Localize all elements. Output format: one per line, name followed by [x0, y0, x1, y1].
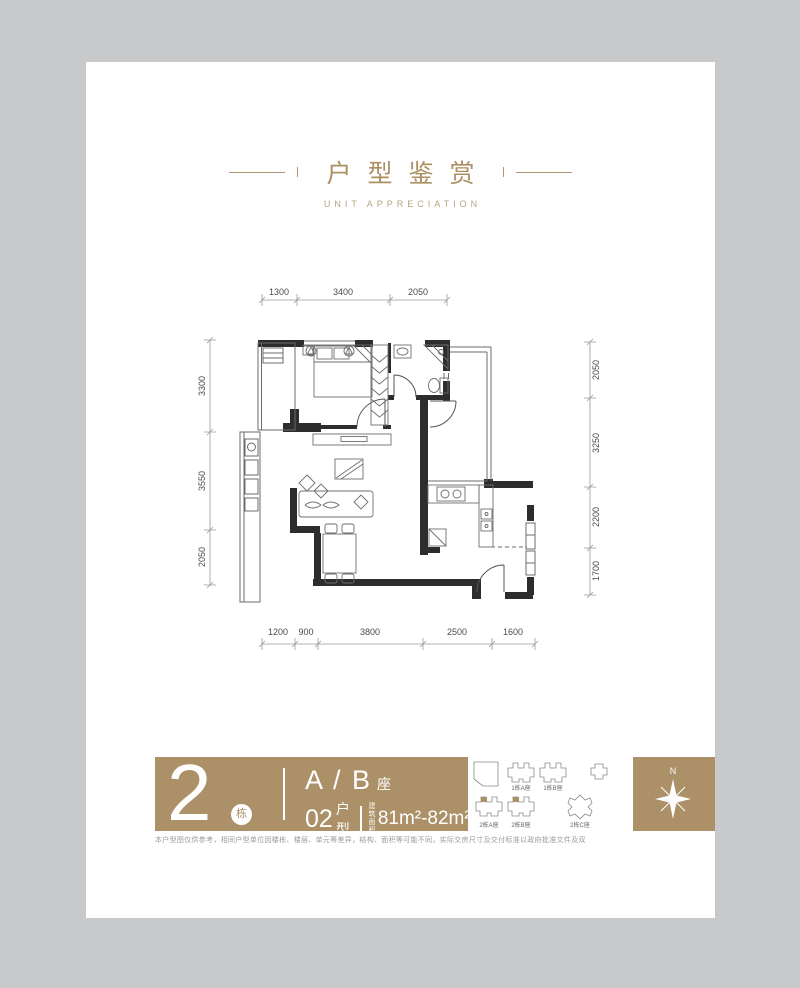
title-tick-right — [503, 167, 504, 177]
disclaimer-text: 本户型图仅供参考，相同户型单位因楼栋、楼层、单元等差异，结构、面积等可能不同，实… — [155, 835, 585, 845]
tower-small — [591, 764, 607, 779]
info-bar: 2 栋 A / B 座 02 户型 建筑 面积 81m²-8 — [155, 757, 715, 831]
building-suffix: 栋 — [236, 809, 247, 820]
dining-table — [323, 534, 356, 573]
dim-top-2: 3400 — [333, 287, 353, 297]
bed — [314, 345, 372, 397]
dim-right-3: 2200 — [591, 507, 601, 527]
dim-bottom-3: 3800 — [360, 627, 380, 637]
dimension-lines — [204, 294, 596, 650]
sofa — [299, 491, 373, 517]
dim-bottom-5: 1600 — [503, 627, 523, 637]
dim-right-1: 2050 — [591, 360, 601, 380]
label-tower-1b: 1栋B座 — [543, 784, 562, 792]
podium-outline — [474, 762, 498, 786]
block-suffix: 座 — [377, 774, 391, 794]
tv-cabinet — [313, 434, 391, 445]
dining-chair — [325, 524, 337, 533]
label-tower-2c: 2栋C座 — [570, 821, 590, 829]
compass-rose-icon — [655, 779, 691, 819]
highlighted-unit-2b — [513, 797, 519, 802]
building-suffix-badge: 栋 — [231, 804, 252, 825]
dim-right-4: 1700 — [591, 561, 601, 581]
kitchen-sink — [481, 509, 492, 519]
divider-small — [360, 806, 361, 831]
compass-block: N — [633, 757, 715, 831]
tower-2b — [508, 797, 534, 816]
page-title: 户型鉴赏 — [310, 154, 490, 190]
windows-and-thin-walls — [240, 341, 535, 602]
site-plan-panel: 1栋A座 1栋B座 2栋A座 2栋B座 2栋C座 — [468, 757, 633, 831]
floor-plan: 1300 3400 2050 3300 3550 2050 2050 3250 … — [195, 283, 605, 683]
poster-background: { "header": { "title": "户型鉴赏", "subtitle… — [0, 0, 800, 988]
site-plan-svg: 1栋A座 1栋B座 2栋A座 2栋B座 2栋C座 — [468, 757, 633, 831]
dim-left-3: 2050 — [197, 547, 207, 567]
unit-suffix: 户型 — [336, 799, 351, 831]
tower-2c — [568, 795, 592, 819]
dim-bottom-1: 1200 — [268, 627, 288, 637]
dining-chair — [342, 524, 354, 533]
page-subtitle: UNIT APPRECIATION — [86, 199, 715, 209]
label-tower-1a: 1栋A座 — [511, 784, 530, 792]
bathroom-sink — [394, 345, 411, 358]
title-block: 户型鉴赏 UNIT APPRECIATION — [86, 154, 715, 209]
tower-1a — [508, 763, 534, 782]
dim-left-2: 3550 — [197, 471, 207, 491]
building-number: 2 — [167, 757, 212, 831]
dim-right-2: 3250 — [591, 433, 601, 453]
tower-2a — [476, 797, 502, 816]
unit-number: 02 — [305, 805, 333, 832]
dim-bottom-2: 900 — [298, 627, 313, 637]
tv — [341, 437, 367, 442]
dim-top-1: 1300 — [269, 287, 289, 297]
area-label: 建筑 面积 — [369, 803, 376, 831]
tower-1b — [540, 763, 566, 782]
compass-svg: N — [633, 757, 715, 831]
divider — [283, 768, 285, 820]
unit-details: A / B 座 02 户型 建筑 面积 81m²-82m² — [305, 765, 468, 831]
brochure-page: 户型鉴赏 UNIT APPRECIATION — [86, 62, 715, 918]
title-line-right — [516, 172, 572, 173]
label-tower-2a: 2栋A座 — [479, 821, 498, 829]
doors — [357, 375, 504, 592]
area-value: 81m²-82m² — [378, 808, 468, 830]
armchair — [299, 475, 315, 491]
furniture — [299, 345, 493, 583]
label-tower-2b: 2栋B座 — [511, 821, 530, 829]
toilet-bowl — [429, 379, 440, 393]
kitchen-counter — [428, 485, 479, 503]
title-line-left — [229, 172, 285, 173]
dim-bottom-4: 2500 — [447, 627, 467, 637]
title-tick-left — [297, 167, 298, 177]
compass-north-label: N — [670, 766, 677, 776]
dim-left-1: 3300 — [197, 376, 207, 396]
unit-info-block: 2 栋 A / B 座 02 户型 建筑 面积 81m²-8 — [155, 757, 468, 831]
block-name: A / B — [305, 765, 372, 796]
walls — [258, 340, 534, 599]
floor-plan-svg: 1300 3400 2050 3300 3550 2050 2050 3250 … — [195, 283, 605, 683]
dim-top-3: 2050 — [408, 287, 428, 297]
highlighted-unit-2a — [481, 797, 487, 802]
